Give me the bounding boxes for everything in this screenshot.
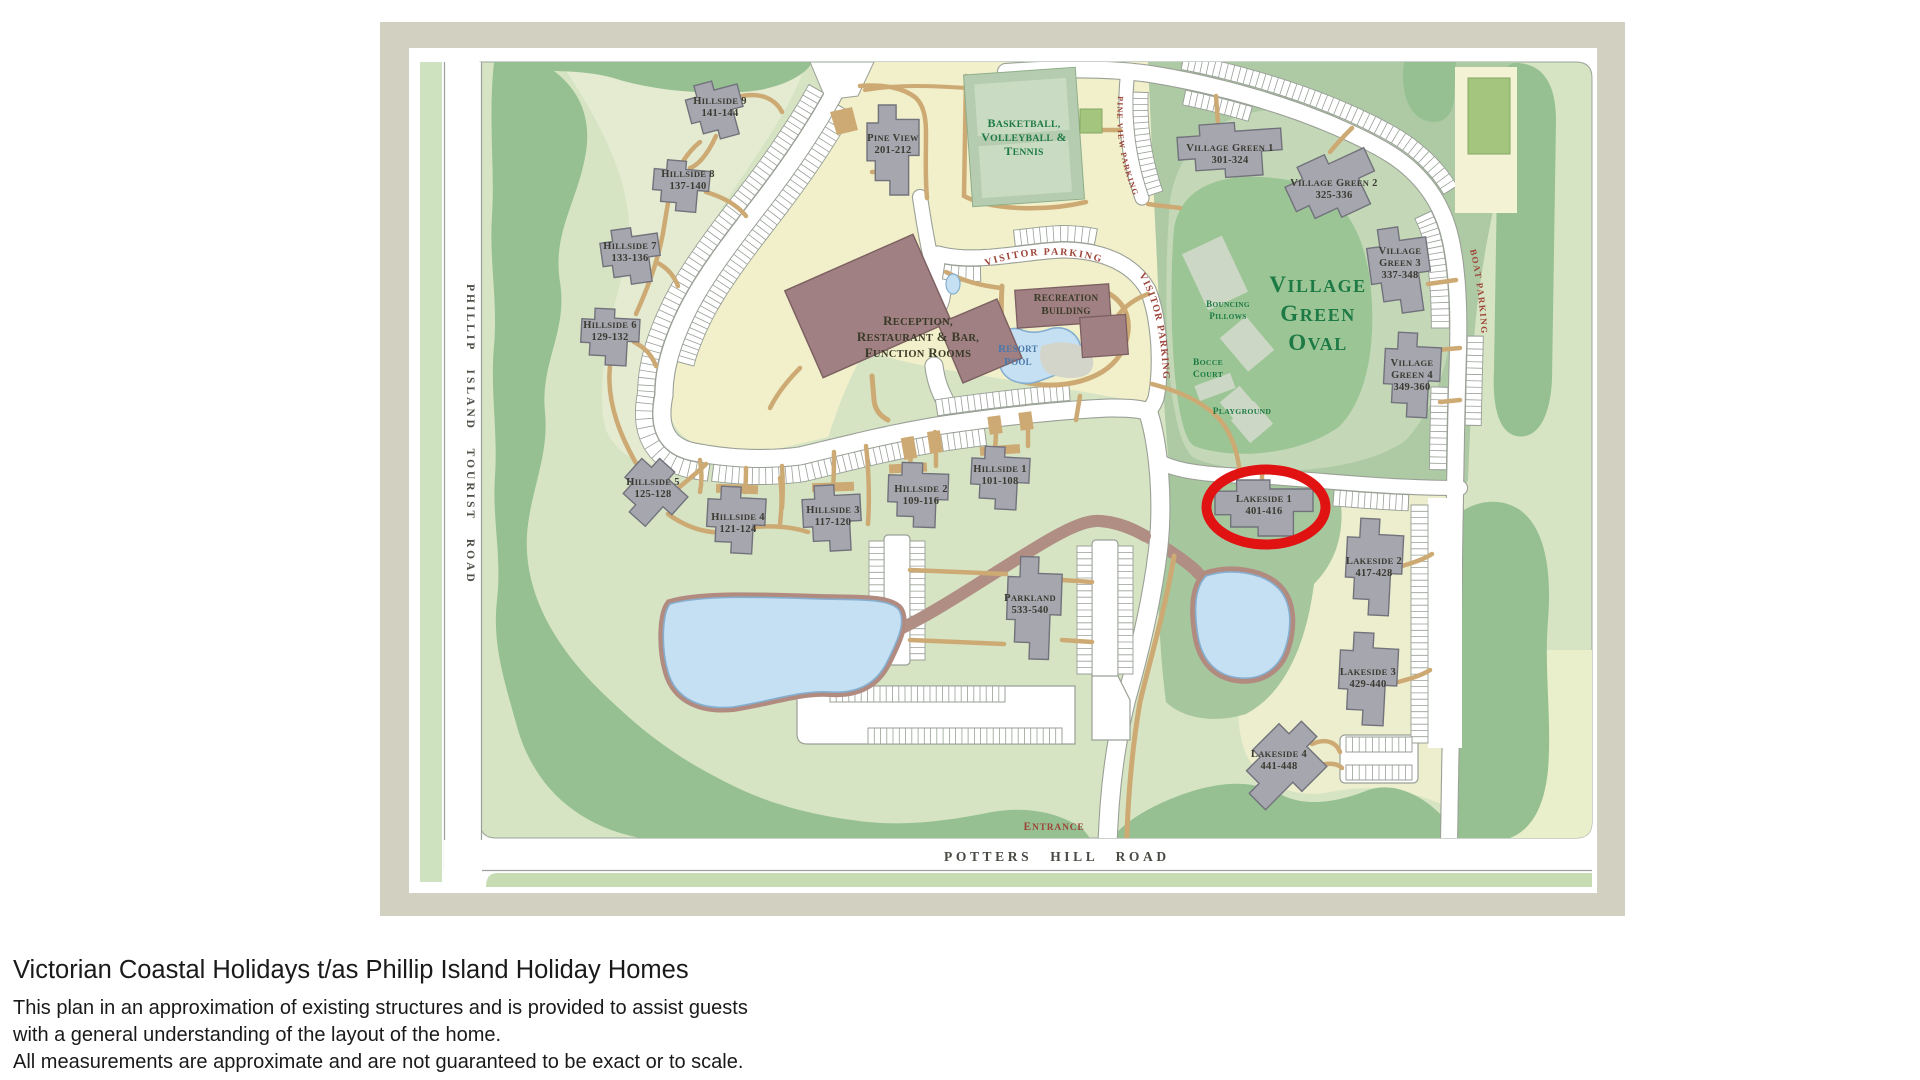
- svg-text:LAKESIDE 2: LAKESIDE 2: [1346, 556, 1402, 567]
- svg-text:RESORT: RESORT: [998, 343, 1038, 355]
- svg-text:141-144: 141-144: [701, 108, 739, 119]
- svg-text:137-140: 137-140: [669, 181, 706, 192]
- svg-text:HILLSIDE 8: HILLSIDE 8: [661, 169, 715, 180]
- svg-text:201-212: 201-212: [874, 145, 911, 156]
- svg-text:HILLSIDE 3: HILLSIDE 3: [806, 505, 860, 516]
- svg-text:GREEN 3: GREEN 3: [1379, 258, 1421, 269]
- svg-text:BOUNCING: BOUNCING: [1206, 299, 1250, 309]
- svg-text:POOL: POOL: [1004, 356, 1032, 368]
- svg-text:GREEN 4: GREEN 4: [1391, 370, 1433, 381]
- svg-text:GREEN: GREEN: [1280, 301, 1355, 326]
- svg-text:PILLOWS: PILLOWS: [1209, 311, 1246, 321]
- svg-text:PARKLAND: PARKLAND: [1004, 593, 1056, 604]
- svg-text:PLAYGROUND: PLAYGROUND: [1213, 407, 1272, 417]
- svg-text:PINE VIEW: PINE VIEW: [867, 133, 919, 144]
- svg-text:HILLSIDE 4: HILLSIDE 4: [711, 512, 765, 523]
- svg-text:VILLAGE: VILLAGE: [1391, 358, 1434, 369]
- svg-text:101-108: 101-108: [981, 476, 1018, 487]
- svg-text:133-136: 133-136: [611, 253, 648, 264]
- svg-text:RECREATION: RECREATION: [1034, 292, 1099, 304]
- svg-text:HILLSIDE 9: HILLSIDE 9: [693, 96, 747, 107]
- svg-text:117-120: 117-120: [815, 517, 852, 528]
- svg-text:VILLAGE GREEN 2: VILLAGE GREEN 2: [1290, 178, 1377, 189]
- svg-text:129-132: 129-132: [591, 332, 628, 343]
- svg-text:VILLAGE: VILLAGE: [1269, 272, 1366, 297]
- svg-text:VILLAGE GREEN 1: VILLAGE GREEN 1: [1186, 143, 1273, 154]
- svg-text:POTTERS HILL ROAD: POTTERS HILL ROAD: [944, 849, 1170, 864]
- svg-text:441-448: 441-448: [1260, 761, 1297, 772]
- svg-text:TENNIS: TENNIS: [1004, 144, 1043, 158]
- svg-text:VOLLEYBALL &: VOLLEYBALL &: [981, 130, 1067, 144]
- svg-text:417-428: 417-428: [1355, 568, 1392, 579]
- svg-text:PHILLIP ISLAND TOURIST ROAD: PHILLIP ISLAND TOURIST ROAD: [464, 284, 476, 585]
- svg-text:HILLSIDE 6: HILLSIDE 6: [583, 320, 637, 331]
- svg-text:337-348: 337-348: [1381, 270, 1418, 281]
- svg-text:349-360: 349-360: [1393, 382, 1430, 393]
- svg-text:533-540: 533-540: [1011, 605, 1048, 616]
- svg-text:COURT: COURT: [1193, 370, 1224, 380]
- svg-text:BASKETBALL,: BASKETBALL,: [988, 116, 1061, 130]
- svg-text:109-116: 109-116: [903, 496, 940, 507]
- svg-text:BOCCE: BOCCE: [1193, 358, 1223, 368]
- svg-text:HILLSIDE 2: HILLSIDE 2: [894, 484, 948, 495]
- svg-text:125-128: 125-128: [634, 489, 671, 500]
- svg-text:LAKESIDE 4: LAKESIDE 4: [1251, 749, 1308, 760]
- svg-text:BUILDING: BUILDING: [1041, 305, 1090, 317]
- svg-text:429-440: 429-440: [1349, 679, 1386, 690]
- svg-text:325-336: 325-336: [1315, 190, 1352, 201]
- svg-text:ENTRANCE: ENTRANCE: [1023, 821, 1084, 833]
- svg-text:301-324: 301-324: [1211, 155, 1249, 166]
- svg-text:LAKESIDE 3: LAKESIDE 3: [1340, 667, 1396, 678]
- svg-text:HILLSIDE 1: HILLSIDE 1: [973, 464, 1027, 475]
- svg-text:401-416: 401-416: [1245, 506, 1282, 517]
- svg-text:HILLSIDE 7: HILLSIDE 7: [603, 241, 657, 252]
- svg-text:LAKESIDE 1: LAKESIDE 1: [1236, 494, 1292, 505]
- svg-text:HILLSIDE 5: HILLSIDE 5: [626, 477, 680, 488]
- svg-text:121-124: 121-124: [719, 524, 757, 535]
- svg-text:VILLAGE: VILLAGE: [1379, 246, 1422, 257]
- svg-text:OVAL: OVAL: [1288, 330, 1348, 355]
